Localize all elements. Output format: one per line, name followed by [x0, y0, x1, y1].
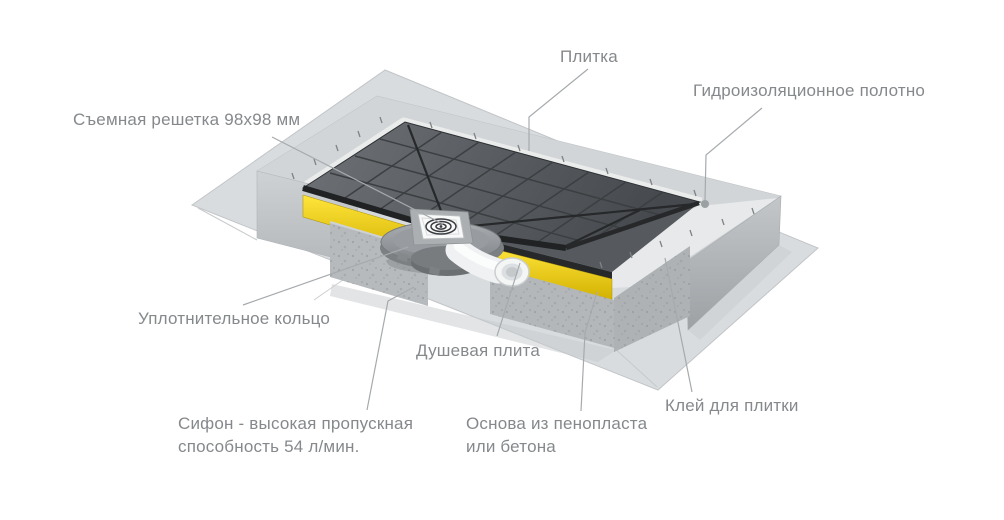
label-waterproof-membrane: Гидроизоляционное полотно [693, 79, 925, 102]
label-siphon: Сифон - высокая пропускная способность 5… [178, 412, 414, 458]
leader-membrane-dot [701, 200, 709, 208]
label-tile: Плитка [560, 45, 618, 68]
label-base: Основа из пенопласта или бетона [466, 412, 658, 458]
label-shower-plate: Душевая плита [416, 339, 540, 362]
label-tile-glue: Клей для плитки [665, 394, 799, 417]
removable-grate [418, 214, 464, 239]
shower-plate-cutaway-diagram: Съемная решетка 98x98 мм Плитка Гидроизо… [0, 0, 1004, 520]
label-sealing-ring: Уплотнительное кольцо [138, 307, 330, 330]
label-removable-grate: Съемная решетка 98x98 мм [73, 108, 300, 131]
